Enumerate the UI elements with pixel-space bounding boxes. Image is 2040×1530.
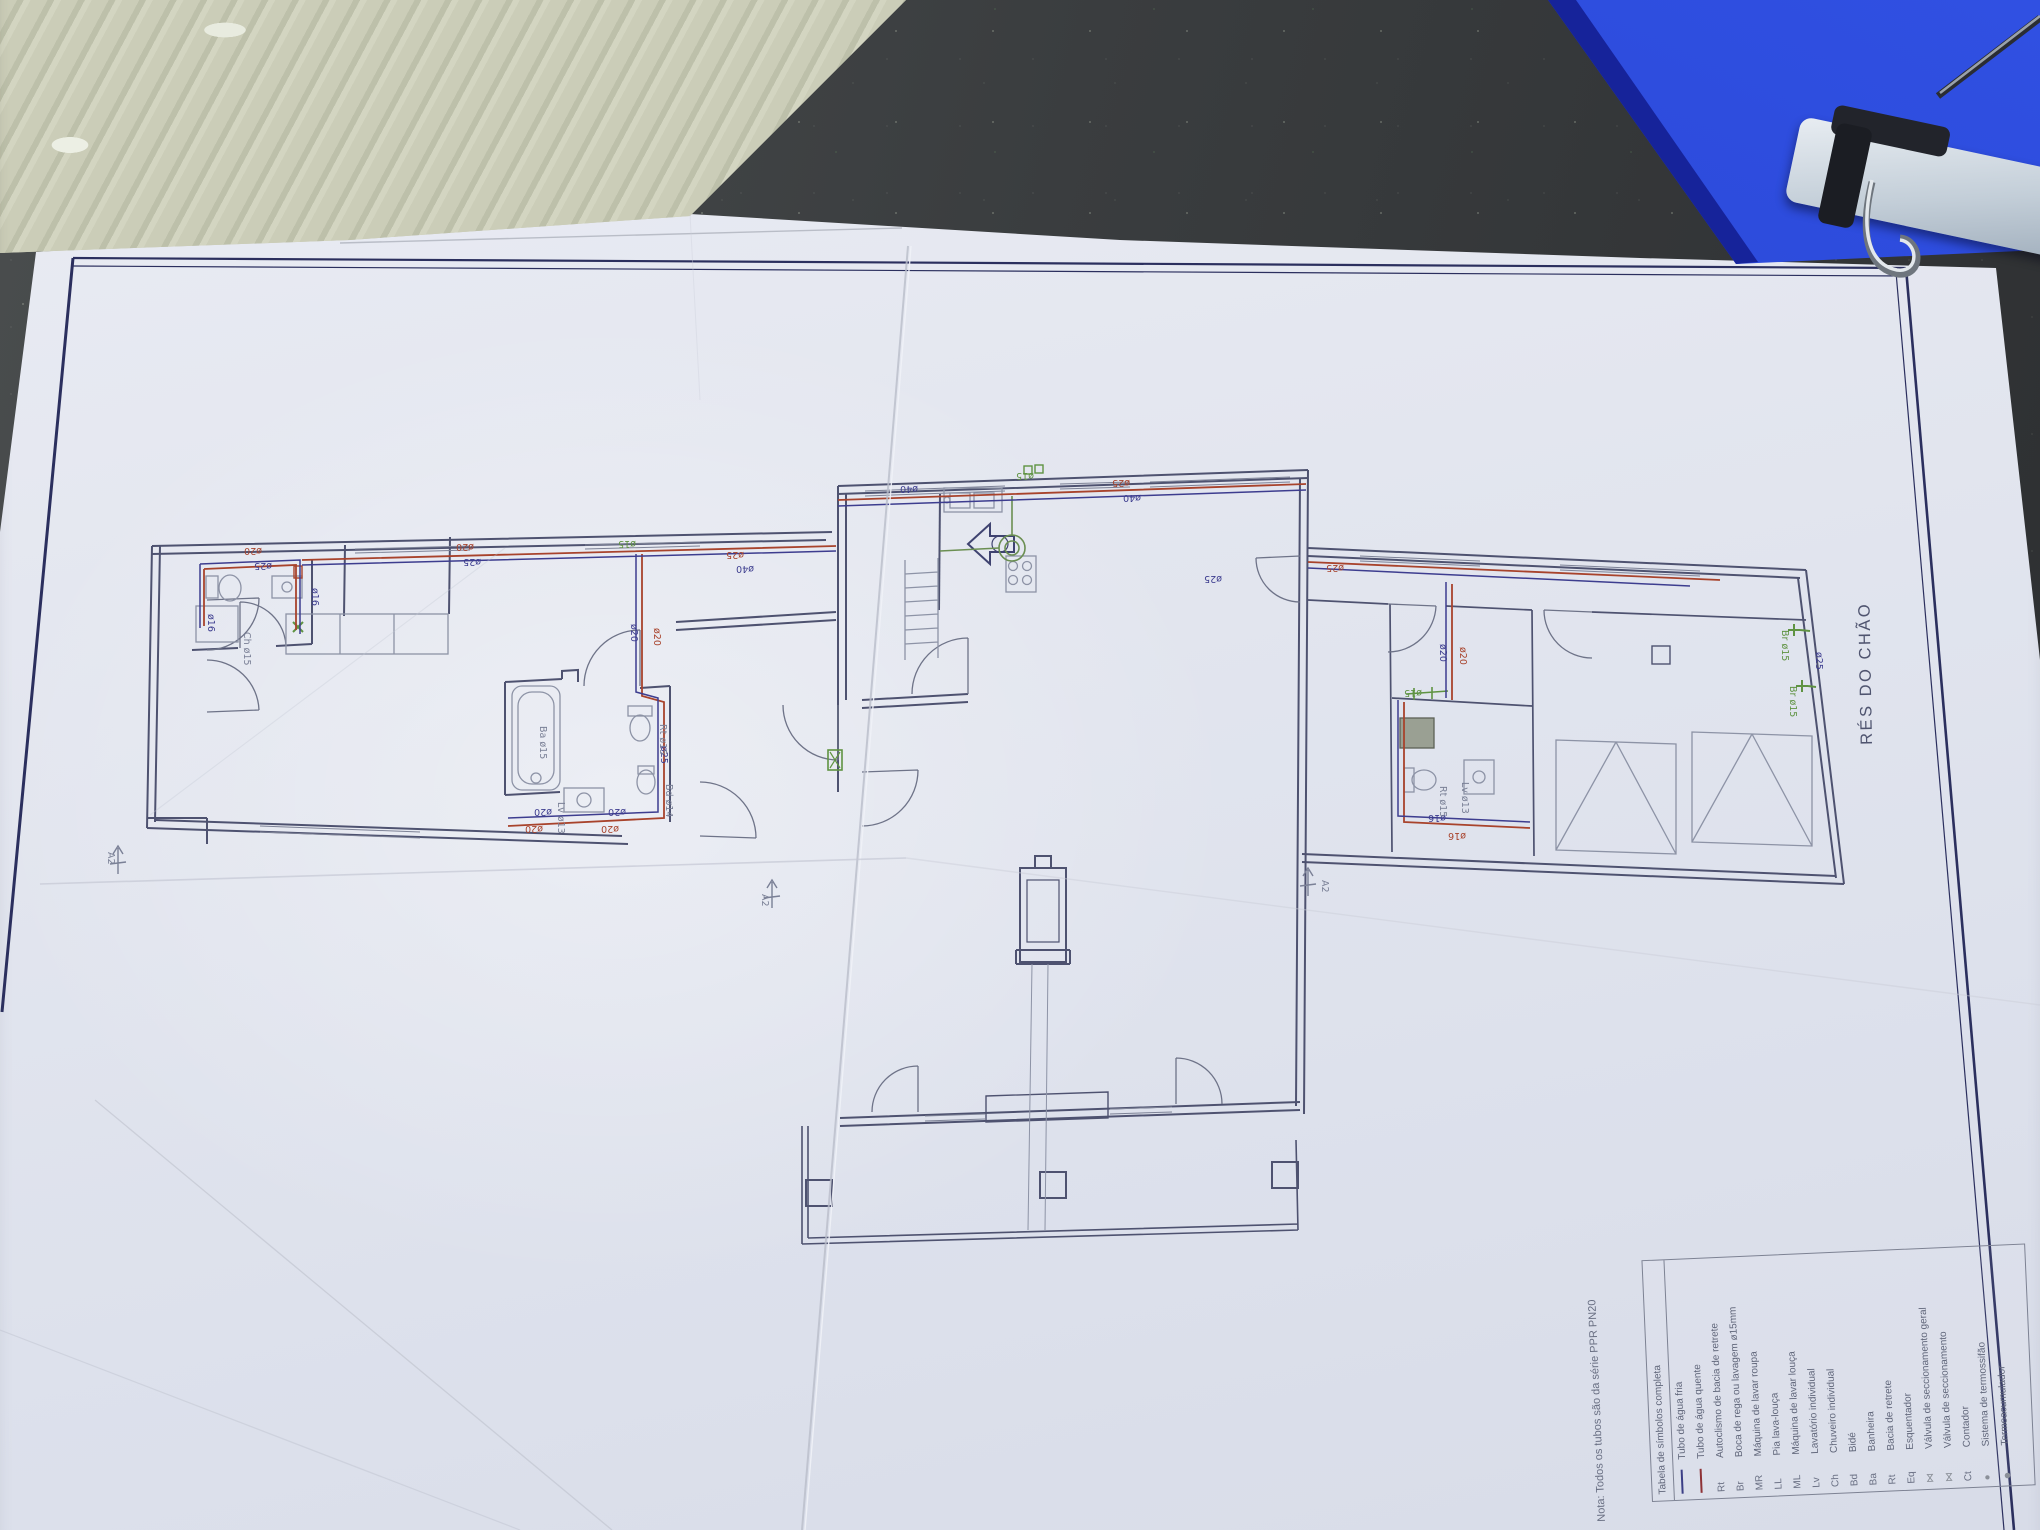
legend-symbol: Br [1730, 1457, 1750, 1492]
photo-scene: ø20ø25ø15ø25ø40ø40ø15ø25ø40ø20ø20ø20ø20ø… [0, 0, 2040, 1530]
legend-symbol: Ba [1863, 1451, 1883, 1486]
legend-symbol: Ch [1825, 1453, 1845, 1488]
legend-symbol: Lv [1806, 1453, 1826, 1488]
legend-symbol: Eq [1901, 1449, 1921, 1484]
legend-label: Termoacumulador [1992, 1365, 2014, 1446]
legend-symbol: ● [1996, 1445, 2016, 1480]
legend-symbol: ⋈ [1939, 1448, 1959, 1483]
legend-label: Banheira [1861, 1411, 1882, 1452]
legend-symbol: ● [1977, 1446, 1997, 1481]
legend-symbol: ⋈ [1920, 1448, 1940, 1483]
legend-label: Esquentador [1898, 1393, 1919, 1450]
legend-box: Tabela de símbolos completa Tubo de água… [1641, 1243, 2035, 1502]
legend-label: Chuveiro individual [1821, 1368, 1844, 1453]
legend-label: Bacia de retrete [1879, 1380, 1901, 1451]
legend-rows: Tubo de água fria Tubo de água quente Rt… [1664, 1245, 2016, 1500]
legend-symbol: Bd [1844, 1452, 1864, 1487]
legend-label: Contador [1956, 1406, 1977, 1448]
legend-symbol: Ct [1958, 1447, 1978, 1482]
legend-symbol: ML [1787, 1454, 1807, 1489]
legend-symbol: Rt [1711, 1458, 1731, 1493]
legend-symbol [1692, 1458, 1712, 1493]
page-title: RÉS DO CHÃO [1855, 545, 1888, 745]
legend-label: Bidé [1843, 1432, 1863, 1453]
legend-symbol: Rt [1882, 1450, 1902, 1485]
legend-symbol [1673, 1459, 1693, 1494]
legend-symbol: MR [1749, 1456, 1769, 1491]
legend-symbol: LL [1768, 1455, 1788, 1490]
